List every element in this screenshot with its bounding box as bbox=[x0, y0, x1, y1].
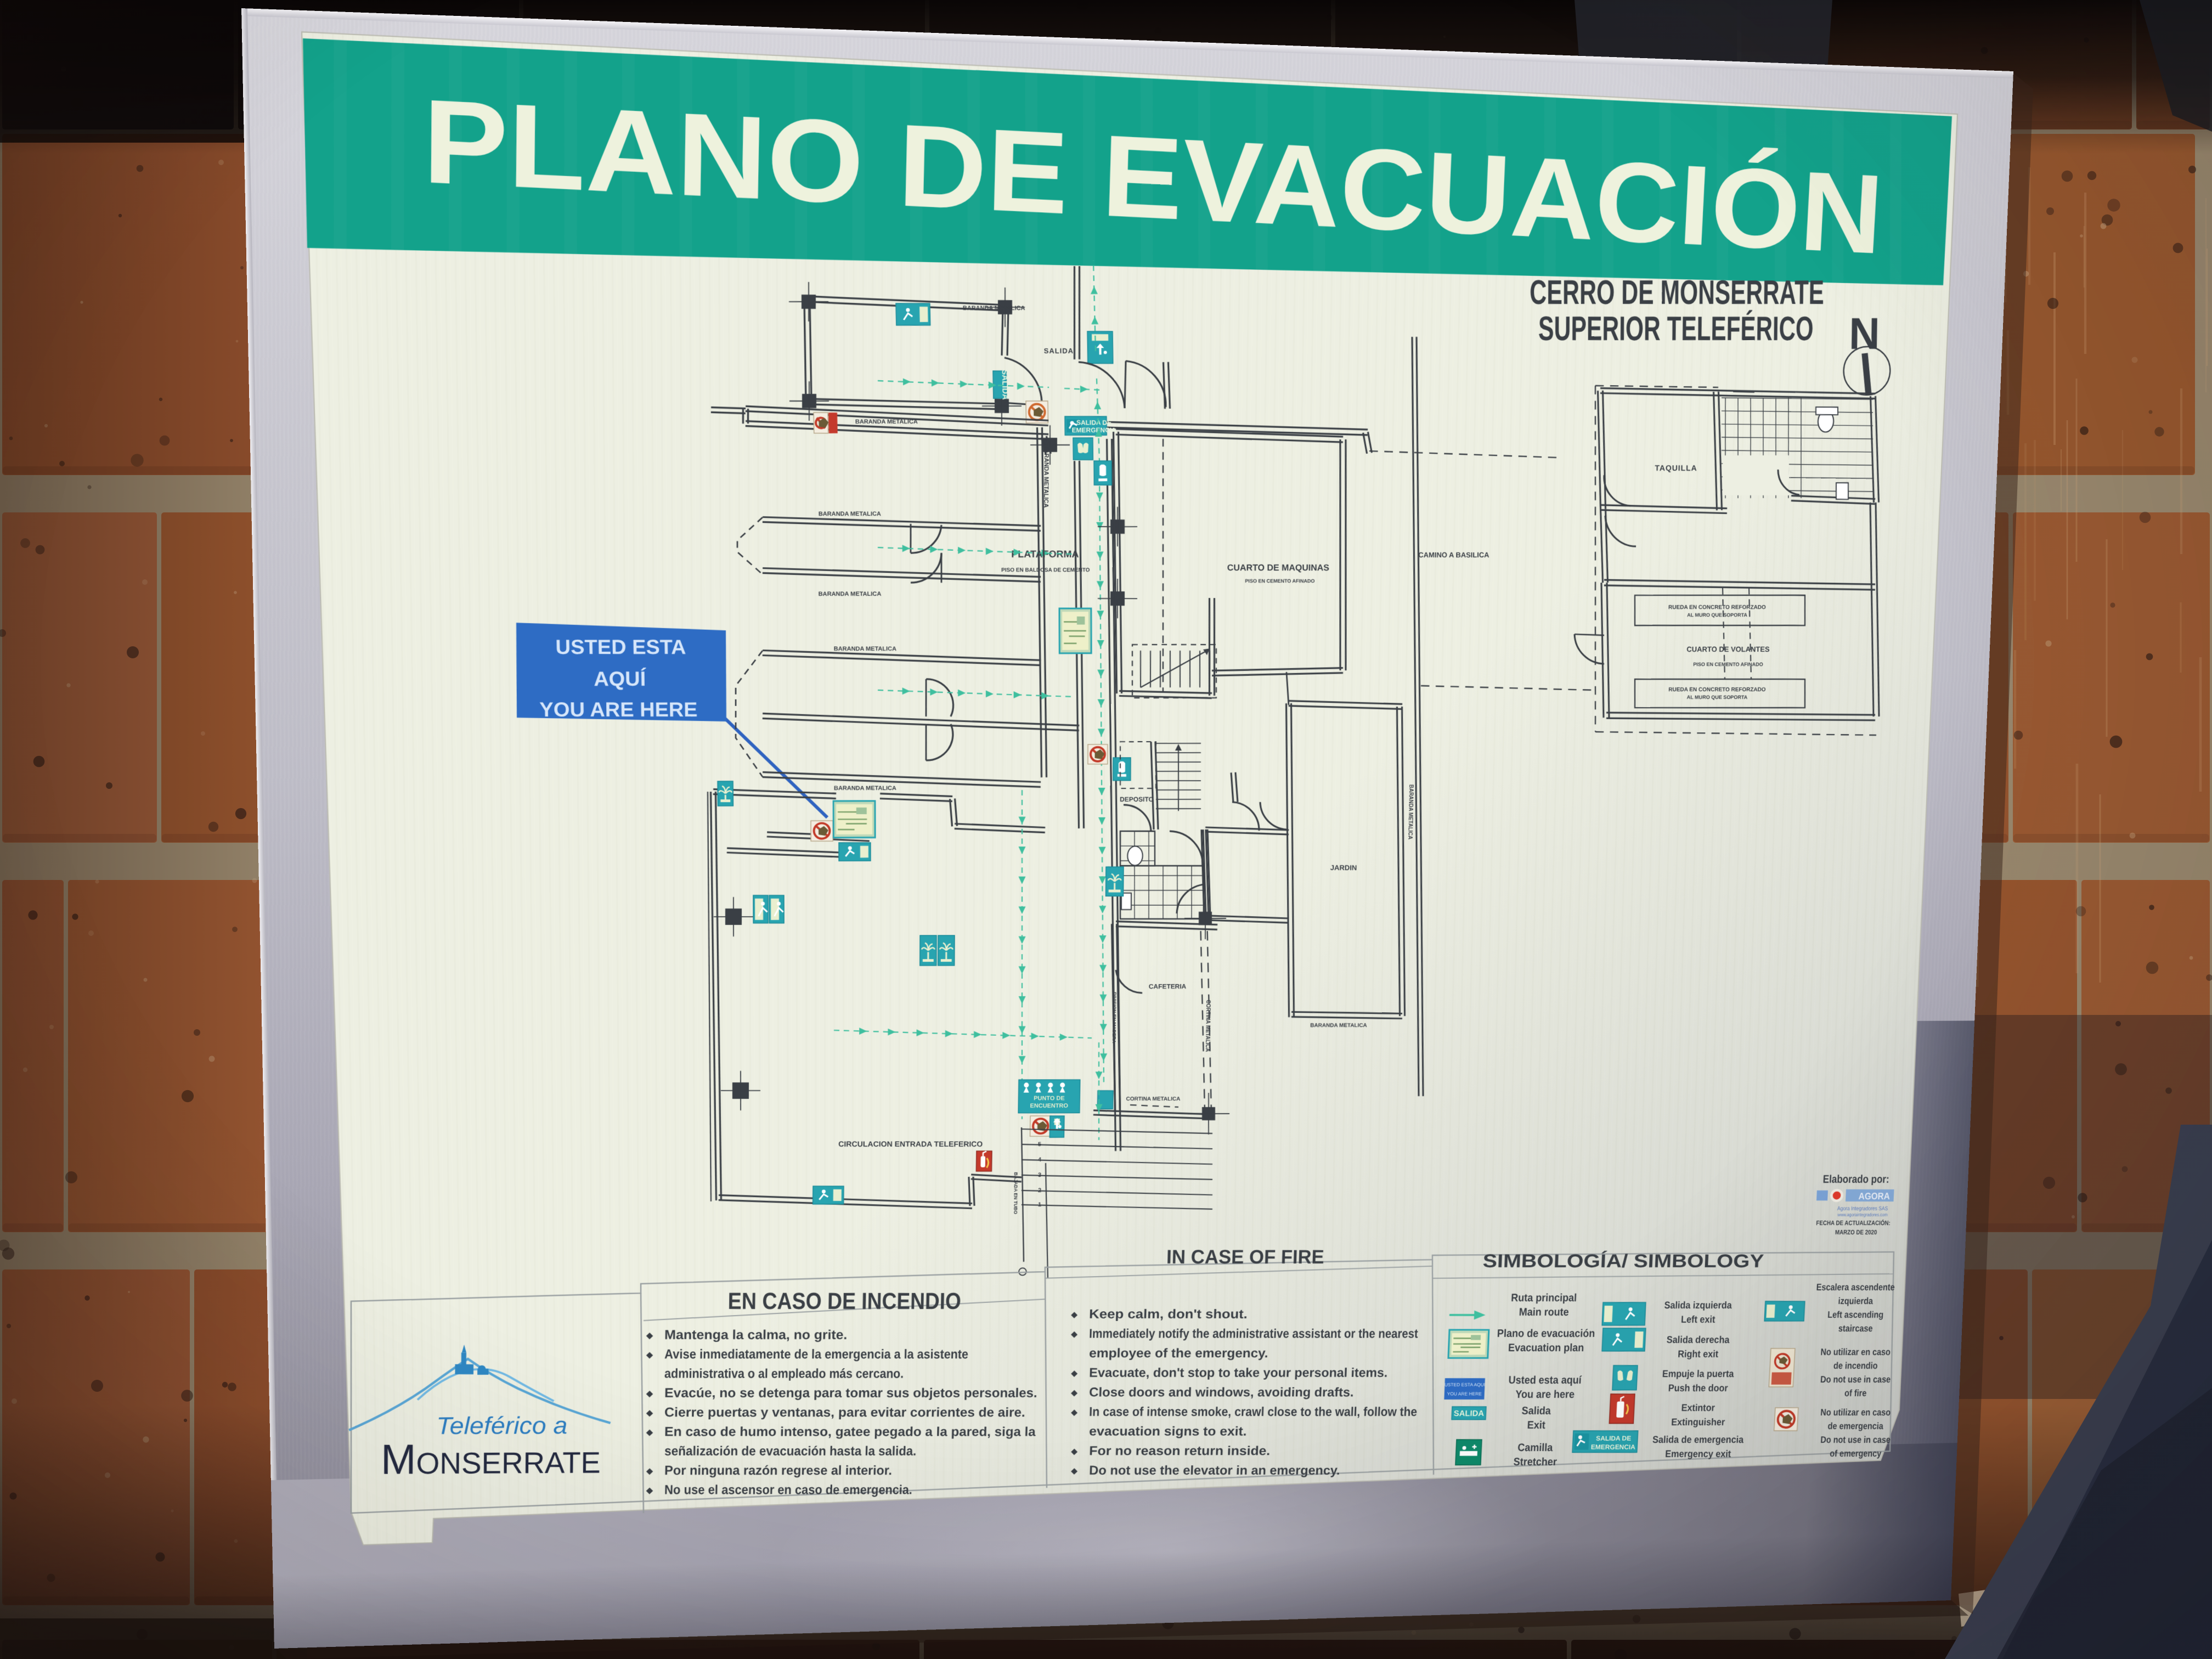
svg-text:Emergency exit: Emergency exit bbox=[1665, 1449, 1731, 1460]
svg-text:MARZO DE 2020: MARZO DE 2020 bbox=[1835, 1229, 1877, 1236]
svg-text:1: 1 bbox=[1038, 1201, 1042, 1207]
svg-text:Main route: Main route bbox=[1519, 1306, 1569, 1318]
svg-text:RUEDA EN CONCRETO REFORZADO: RUEDA EN CONCRETO REFORZADO bbox=[1668, 605, 1766, 611]
svg-text:PISO EN CEMENTO AFINADO: PISO EN CEMENTO AFINADO bbox=[1693, 662, 1763, 668]
svg-text:No utilizar en caso: No utilizar en caso bbox=[1820, 1347, 1891, 1357]
svg-text:◆: ◆ bbox=[646, 1466, 653, 1476]
svg-text:YOU ARE HERE: YOU ARE HERE bbox=[1447, 1392, 1482, 1397]
svg-text:AGORA: AGORA bbox=[1858, 1192, 1890, 1202]
svg-text:In case of intense smoke, craw: In case of intense smoke, crawl close to… bbox=[1089, 1404, 1418, 1419]
svg-text:TAQUILLA: TAQUILLA bbox=[1655, 464, 1697, 472]
svg-text:Empuje la puerta: Empuje la puerta bbox=[1662, 1369, 1735, 1380]
svg-text:Do not use in case: Do not use in case bbox=[1820, 1374, 1891, 1385]
svg-text:RUEDA EN CONCRETO REFORZADO: RUEDA EN CONCRETO REFORZADO bbox=[1668, 687, 1765, 693]
svg-text:SALIDA DE: SALIDA DE bbox=[1076, 419, 1112, 426]
svg-text:Salida de emergencia: Salida de emergencia bbox=[1652, 1435, 1745, 1446]
svg-text:Close doors and windows, avoid: Close doors and windows, avoiding drafts… bbox=[1089, 1385, 1354, 1400]
svg-text:PISO EN CEMENTO AFINADO: PISO EN CEMENTO AFINADO bbox=[1245, 579, 1314, 584]
svg-text:PUNTO DE: PUNTO DE bbox=[1034, 1094, 1065, 1101]
svg-text:www.agoraintegradores.com: www.agoraintegradores.com bbox=[1837, 1212, 1888, 1217]
svg-text:DEPOSITO: DEPOSITO bbox=[1120, 795, 1154, 803]
svg-text:Elaborado por:: Elaborado por: bbox=[1822, 1173, 1889, 1186]
svg-text:JARDIN: JARDIN bbox=[1330, 864, 1357, 872]
svg-text:3: 3 bbox=[1038, 1171, 1042, 1178]
svg-text:Cierre puertas y ventanas, par: Cierre puertas y ventanas, para evitar c… bbox=[664, 1404, 1025, 1419]
svg-text:◆: ◆ bbox=[646, 1486, 653, 1495]
svg-text:Agora Integradores SAS: Agora Integradores SAS bbox=[1837, 1206, 1888, 1212]
svg-text:SIMBOLOGÍA/ SIMBOLOGY: SIMBOLOGÍA/ SIMBOLOGY bbox=[1482, 1251, 1764, 1272]
svg-text:CIRCULACION ENTRADA TELEFERICO: CIRCULACION ENTRADA TELEFERICO bbox=[838, 1140, 983, 1148]
svg-text:Stretcher: Stretcher bbox=[1513, 1455, 1558, 1468]
svg-text:EN CASO DE INCENDIO: EN CASO DE INCENDIO bbox=[727, 1288, 961, 1314]
svg-text:evacuation signs to exit.: evacuation signs to exit. bbox=[1089, 1424, 1247, 1438]
svg-text:Ruta principal: Ruta principal bbox=[1511, 1291, 1577, 1304]
svg-text:◆: ◆ bbox=[1070, 1408, 1078, 1417]
svg-text:Do not use in case: Do not use in case bbox=[1820, 1435, 1891, 1445]
svg-text:No use el ascensor en caso de: No use el ascensor en caso de emergencia… bbox=[664, 1482, 912, 1497]
svg-text:SUPERIOR TELEFÉRICO: SUPERIOR TELEFÉRICO bbox=[1538, 309, 1814, 348]
svg-text:Evacúe, no se detenga para tom: Evacúe, no se detenga para tomar sus obj… bbox=[664, 1385, 1037, 1400]
svg-text:staircase: staircase bbox=[1838, 1323, 1873, 1334]
svg-text:Plano de evacuación: Plano de evacuación bbox=[1497, 1327, 1595, 1340]
svg-text:FECHA DE ACTUALIZACIÓN:: FECHA DE ACTUALIZACIÓN: bbox=[1816, 1219, 1891, 1227]
svg-text:SALIDA: SALIDA bbox=[1000, 369, 1009, 400]
svg-text:Immediately notify the adminis: Immediately notify the administrative as… bbox=[1089, 1327, 1419, 1341]
svg-text:◆: ◆ bbox=[646, 1389, 653, 1398]
svg-text:AQUÍ: AQUÍ bbox=[594, 667, 646, 691]
svg-text:BARANDA METALICA: BARANDA METALICA bbox=[834, 645, 897, 652]
svg-text:BARANDA METALICA: BARANDA METALICA bbox=[1407, 785, 1414, 840]
svg-text:◆: ◆ bbox=[646, 1427, 653, 1437]
svg-text:AL MURO QUE SOPORTA: AL MURO QUE SOPORTA bbox=[1687, 613, 1747, 618]
svg-text:of fire: of fire bbox=[1844, 1388, 1867, 1398]
svg-text:Mantenga la calma, no grite.: Mantenga la calma, no grite. bbox=[664, 1327, 848, 1342]
svg-text:You are here: You are here bbox=[1515, 1388, 1575, 1400]
svg-text:ENCUENTRO: ENCUENTRO bbox=[1030, 1102, 1068, 1109]
svg-text:BARANDA METALICA: BARANDA METALICA bbox=[1310, 1023, 1367, 1029]
svg-text:de emergencia: de emergencia bbox=[1827, 1421, 1884, 1431]
svg-text:EMERGENCIA: EMERGENCIA bbox=[1072, 426, 1117, 434]
svg-text:YOU ARE HERE: YOU ARE HERE bbox=[539, 698, 698, 721]
svg-text:de incendio: de incendio bbox=[1833, 1361, 1878, 1371]
svg-text:For no reason return inside.: For no reason return inside. bbox=[1089, 1443, 1271, 1458]
svg-text:IN CASE OF FIRE: IN CASE OF FIRE bbox=[1166, 1246, 1325, 1268]
svg-text:◆: ◆ bbox=[646, 1350, 653, 1359]
svg-text:5: 5 bbox=[1038, 1141, 1042, 1147]
svg-text:Push the door: Push the door bbox=[1668, 1383, 1728, 1394]
svg-text:employee of the emergency.: employee of the emergency. bbox=[1089, 1346, 1268, 1360]
svg-text:DIVISION EN MADERA: DIVISION EN MADERA bbox=[1111, 992, 1117, 1043]
svg-text:SALIDA: SALIDA bbox=[1044, 347, 1074, 355]
svg-text:Extintor: Extintor bbox=[1681, 1403, 1715, 1414]
svg-text:Right exit: Right exit bbox=[1678, 1349, 1719, 1360]
svg-text:Teleférico a: Teleférico a bbox=[436, 1412, 567, 1439]
svg-text:Do not use the elevator in an: Do not use the elevator in an emergency. bbox=[1089, 1463, 1340, 1477]
svg-text:Camilla: Camilla bbox=[1517, 1441, 1554, 1453]
svg-text:Exit: Exit bbox=[1527, 1419, 1546, 1431]
svg-text:Salida izquierda: Salida izquierda bbox=[1664, 1300, 1733, 1311]
svg-text:4: 4 bbox=[1038, 1156, 1042, 1163]
svg-text:Usted esta aquí: Usted esta aquí bbox=[1508, 1374, 1582, 1386]
svg-text:CORTINA METALICA: CORTINA METALICA bbox=[1126, 1096, 1180, 1102]
svg-text:administrativa o al empleado m: administrativa o al empleado más cercano… bbox=[664, 1365, 904, 1380]
svg-text:◆: ◆ bbox=[1070, 1329, 1078, 1339]
svg-text:Salida derecha: Salida derecha bbox=[1666, 1335, 1730, 1346]
svg-text:SALIDA: SALIDA bbox=[1453, 1408, 1484, 1418]
svg-text:Por ninguna razón regrese al i: Por ninguna razón regrese al interior. bbox=[664, 1463, 893, 1477]
svg-text:SALIDA DE: SALIDA DE bbox=[1596, 1435, 1632, 1442]
svg-text:Evacuate, don't stop to take y: Evacuate, don't stop to take your person… bbox=[1089, 1365, 1388, 1380]
svg-text:CUARTO DE VOLANTES: CUARTO DE VOLANTES bbox=[1686, 645, 1770, 653]
svg-text:Salida: Salida bbox=[1521, 1404, 1551, 1417]
svg-text:◆: ◆ bbox=[646, 1331, 653, 1340]
svg-text:Evacuation plan: Evacuation plan bbox=[1508, 1341, 1584, 1353]
svg-text:◆: ◆ bbox=[1070, 1466, 1078, 1475]
svg-text:◆: ◆ bbox=[1070, 1369, 1078, 1378]
svg-text:of emergency: of emergency bbox=[1830, 1448, 1882, 1459]
svg-text:CAFETERIA: CAFETERIA bbox=[1149, 983, 1187, 990]
svg-text:USTED ESTA AQUI: USTED ESTA AQUI bbox=[1444, 1383, 1486, 1387]
svg-text:CORTINA METALICA: CORTINA METALICA bbox=[1204, 1000, 1211, 1052]
svg-text:CERRO DE MONSERRATE: CERRO DE MONSERRATE bbox=[1530, 274, 1824, 312]
svg-text:◆: ◆ bbox=[646, 1408, 653, 1418]
svg-text:señalización de evacuación has: señalización de evacuación hasta la sali… bbox=[664, 1443, 917, 1458]
svg-text:◆: ◆ bbox=[1070, 1310, 1078, 1319]
svg-text:USTED ESTA: USTED ESTA bbox=[555, 636, 686, 658]
svg-text:AL MURO QUE SOPORTA: AL MURO QUE SOPORTA bbox=[1687, 695, 1748, 701]
svg-text:BARANDA METALICA: BARANDA METALICA bbox=[819, 590, 882, 597]
svg-text:Extinguisher: Extinguisher bbox=[1671, 1417, 1725, 1428]
svg-text:izquierda: izquierda bbox=[1838, 1296, 1874, 1306]
svg-text:BARANDA METALICA: BARANDA METALICA bbox=[819, 511, 882, 517]
svg-text:BARANDA METALICA: BARANDA METALICA bbox=[834, 785, 896, 792]
svg-text:Left exit: Left exit bbox=[1681, 1314, 1716, 1325]
svg-text:2: 2 bbox=[1038, 1187, 1042, 1193]
svg-text:Avise inmediatamente de la eme: Avise inmediatamente de la emergencia a … bbox=[664, 1346, 968, 1361]
svg-text:No utilizar en caso: No utilizar en caso bbox=[1820, 1407, 1891, 1418]
svg-text:BARANDA METALICA: BARANDA METALICA bbox=[855, 419, 918, 425]
svg-text:CUARTO DE MAQUINAS: CUARTO DE MAQUINAS bbox=[1227, 562, 1329, 572]
svg-text:BAJADA EN TUBO: BAJADA EN TUBO bbox=[1012, 1172, 1018, 1215]
svg-text:Escalera ascendente: Escalera ascendente bbox=[1816, 1282, 1895, 1292]
svg-text:CAMINO A BASILICA: CAMINO A BASILICA bbox=[1418, 551, 1489, 560]
svg-text:Keep calm, don't shout.: Keep calm, don't shout. bbox=[1089, 1307, 1248, 1321]
svg-text:BARANDA METALICA: BARANDA METALICA bbox=[963, 305, 1025, 312]
svg-text:EMERGENCIA: EMERGENCIA bbox=[1591, 1443, 1636, 1451]
svg-text:En caso de humo intenso, gatee: En caso de humo intenso, gatee pegado a … bbox=[664, 1424, 1036, 1438]
svg-text:Left ascending: Left ascending bbox=[1827, 1309, 1884, 1319]
svg-text:◆: ◆ bbox=[1070, 1388, 1078, 1397]
svg-text:◆: ◆ bbox=[1070, 1447, 1078, 1455]
